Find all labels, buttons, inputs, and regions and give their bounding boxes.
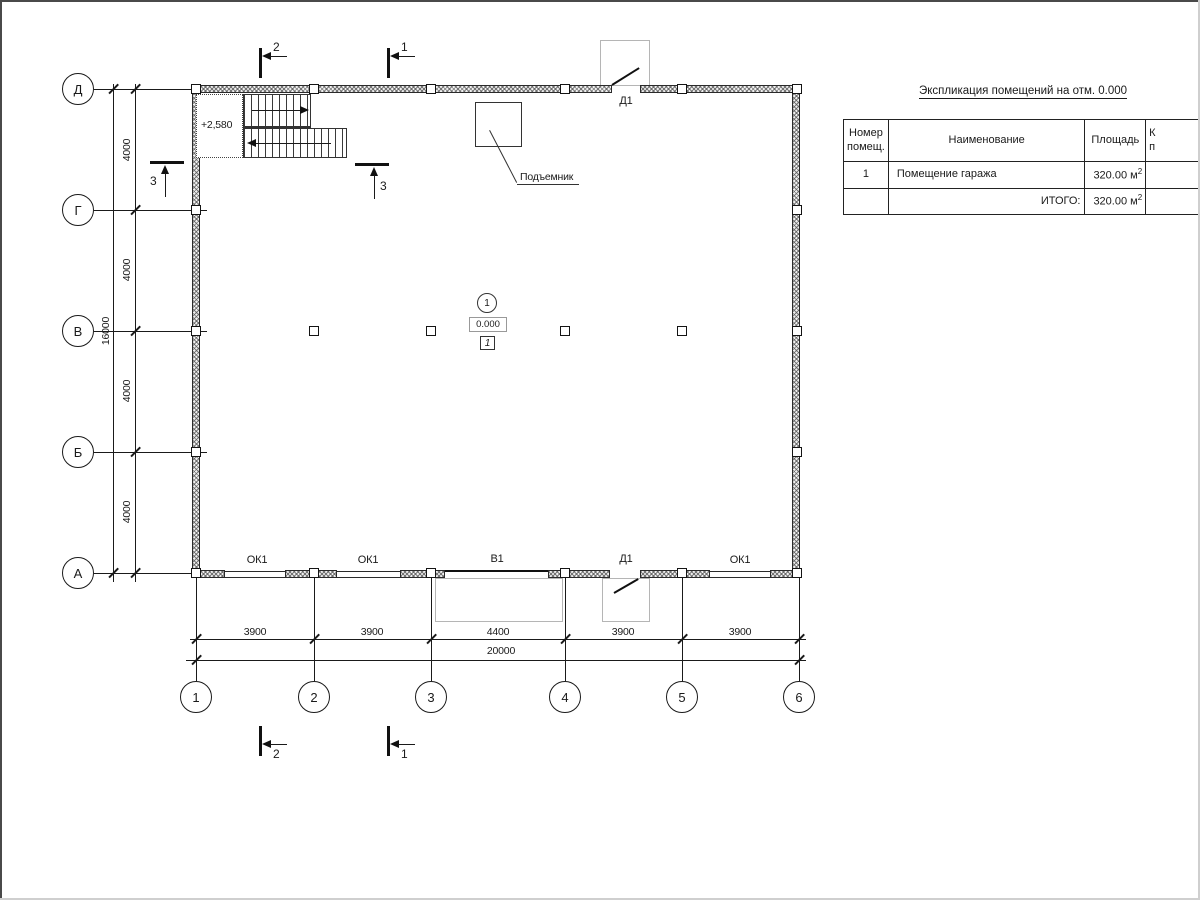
interior-column bbox=[309, 326, 319, 336]
door-label-bottom: Д1 bbox=[611, 553, 641, 565]
wall-bottom-4 bbox=[548, 570, 610, 578]
stair-arrow-up-icon bbox=[300, 106, 309, 114]
column bbox=[677, 84, 687, 94]
spec-cell-category bbox=[1146, 162, 1200, 189]
spec-header-category-line1: К bbox=[1149, 127, 1155, 139]
axis-number: 3 bbox=[427, 690, 434, 705]
column bbox=[792, 447, 802, 457]
spec-total-area: 320.00 м2 bbox=[1085, 189, 1146, 215]
section-cut-line bbox=[150, 161, 184, 164]
column bbox=[309, 84, 319, 94]
column bbox=[426, 84, 436, 94]
section-label: 1 bbox=[401, 40, 407, 54]
wall-bottom-5 bbox=[640, 570, 710, 578]
dim-label: 4000 bbox=[121, 492, 133, 532]
axis-letter: Б bbox=[74, 445, 83, 460]
spec-header-row: Номер помещ. Наименование Площадь К п bbox=[844, 120, 1200, 162]
dim-label: 3900 bbox=[603, 626, 643, 638]
axis-line-col bbox=[799, 578, 800, 681]
section-label: 1 bbox=[401, 747, 407, 761]
section-arrow-line bbox=[374, 175, 375, 199]
spec-total-empty bbox=[844, 189, 889, 215]
column bbox=[560, 84, 570, 94]
column bbox=[191, 326, 201, 336]
axis-number: 1 bbox=[192, 690, 199, 705]
spec-cell-num: 1 bbox=[844, 162, 889, 189]
area-value: 320.00 м bbox=[1093, 196, 1137, 208]
axis-letter: В bbox=[74, 324, 83, 339]
door-label-top: Д1 bbox=[611, 95, 641, 107]
dim-label: 4400 bbox=[478, 626, 518, 638]
axis-circle-col: 2 bbox=[298, 681, 330, 713]
axis-circle-row: А bbox=[62, 557, 94, 589]
gate-apron bbox=[435, 578, 563, 622]
spec-header-category-line2: п bbox=[1149, 141, 1155, 153]
column bbox=[560, 568, 570, 578]
axis-number: 5 bbox=[678, 690, 685, 705]
room-number: 1 bbox=[484, 298, 490, 309]
dim-label: 4000 bbox=[121, 250, 133, 290]
axis-circle-col: 4 bbox=[549, 681, 581, 713]
wall-bottom-3 bbox=[400, 570, 445, 578]
dim-line-left-segments bbox=[135, 84, 136, 582]
interior-column bbox=[677, 326, 687, 336]
frame-left-edge bbox=[0, 0, 2, 900]
axis-number: 4 bbox=[561, 690, 568, 705]
column bbox=[191, 205, 201, 215]
spec-total-row: ИТОГО: 320.00 м2 bbox=[844, 189, 1200, 215]
spec-table-title-text: Экспликация помещений на отм. 0.000 bbox=[919, 85, 1127, 99]
axis-circle-col: 1 bbox=[180, 681, 212, 713]
section-cut-line bbox=[355, 163, 389, 166]
column bbox=[792, 205, 802, 215]
axis-circle-row: Б bbox=[62, 436, 94, 468]
wall-top-b bbox=[640, 85, 800, 93]
window-label-2: ОК1 bbox=[353, 554, 383, 566]
dim-line-bottom-segments bbox=[190, 639, 806, 640]
section-arrow-line bbox=[398, 744, 415, 745]
room-number-circle: 1 bbox=[477, 293, 497, 313]
area-superscript: 2 bbox=[1138, 167, 1142, 176]
window-ok1-2 bbox=[337, 571, 400, 578]
drawing-sheet: +2,580 Подъемник 1 0.000 1 Д1 ОК1 ОК1 В1… bbox=[0, 0, 1200, 900]
axis-line-col bbox=[431, 578, 432, 681]
dim-line-left-total bbox=[113, 84, 114, 582]
axis-line-col bbox=[682, 578, 683, 681]
spec-header-num: Номер помещ. bbox=[844, 120, 889, 162]
column bbox=[309, 568, 319, 578]
spec-total-label: ИТОГО: bbox=[888, 189, 1085, 215]
spec-table: Номер помещ. Наименование Площадь К п 1 … bbox=[843, 119, 1200, 215]
door-swing-top bbox=[600, 40, 650, 86]
column bbox=[792, 84, 802, 94]
dim-label: 4000 bbox=[121, 130, 133, 170]
axis-circle-row: Г bbox=[62, 194, 94, 226]
room-elevation: 0.000 bbox=[476, 319, 500, 330]
hoist-outline bbox=[475, 102, 522, 147]
wall-top-a bbox=[192, 85, 612, 93]
axis-line-col bbox=[314, 578, 315, 681]
dim-line-bottom-total bbox=[186, 660, 806, 661]
spec-cell-area: 320.00 м2 bbox=[1085, 162, 1146, 189]
axis-letter: Г bbox=[74, 203, 81, 218]
axis-line-col bbox=[565, 578, 566, 681]
stair-elevation-label: +2,580 bbox=[201, 119, 232, 131]
axis-circle-col: 3 bbox=[415, 681, 447, 713]
area-superscript: 2 bbox=[1138, 193, 1142, 202]
dim-label-total: 16000 bbox=[100, 306, 112, 356]
section-arrow-line bbox=[270, 56, 287, 57]
column bbox=[191, 568, 201, 578]
hoist-label: Подъемник bbox=[520, 171, 573, 183]
frame-top-edge bbox=[0, 0, 1200, 2]
dim-label: 3900 bbox=[720, 626, 760, 638]
section-arrow-line bbox=[398, 56, 415, 57]
column bbox=[191, 447, 201, 457]
dim-label: 3900 bbox=[352, 626, 392, 638]
section-arrow-line bbox=[165, 173, 166, 197]
column bbox=[426, 568, 436, 578]
axis-circle-col: 5 bbox=[666, 681, 698, 713]
spec-header-category: К п bbox=[1146, 120, 1200, 162]
axis-letter: А bbox=[74, 566, 83, 581]
axis-number: 2 bbox=[310, 690, 317, 705]
axis-number: 6 bbox=[795, 690, 802, 705]
window-ok1-1 bbox=[225, 571, 285, 578]
column bbox=[191, 84, 201, 94]
column bbox=[677, 568, 687, 578]
room-type-box: 1 bbox=[480, 336, 495, 350]
spec-header-area: Площадь bbox=[1085, 120, 1146, 162]
stair-arrow-down-line bbox=[255, 143, 331, 144]
dim-label-total: 20000 bbox=[471, 645, 531, 657]
section-label: 2 bbox=[273, 40, 279, 54]
hoist-leader-underline bbox=[517, 184, 579, 185]
dim-label: 4000 bbox=[121, 371, 133, 411]
window-label-3: ОК1 bbox=[725, 554, 755, 566]
column bbox=[792, 568, 802, 578]
axis-circle-row: В bbox=[62, 315, 94, 347]
room-elevation-box: 0.000 bbox=[469, 317, 507, 332]
axis-letter: Д bbox=[74, 82, 83, 97]
axis-circle-col: 6 bbox=[783, 681, 815, 713]
spec-header-name: Наименование bbox=[888, 120, 1085, 162]
spec-data-row: 1 Помещение гаража 320.00 м2 bbox=[844, 162, 1200, 189]
section-arrow-line bbox=[270, 744, 287, 745]
window-ok1-3 bbox=[710, 571, 770, 578]
section-label: 2 bbox=[273, 747, 279, 761]
gate-label: В1 bbox=[482, 553, 512, 565]
dim-label: 3900 bbox=[235, 626, 275, 638]
interior-column bbox=[426, 326, 436, 336]
axis-line-col bbox=[196, 578, 197, 681]
interior-column bbox=[560, 326, 570, 336]
column bbox=[792, 326, 802, 336]
area-value: 320.00 м bbox=[1093, 169, 1137, 181]
gate-line bbox=[445, 570, 548, 572]
stair-arrow-up-line bbox=[252, 110, 302, 111]
axis-circle-row: Д bbox=[62, 73, 94, 105]
section-label: 3 bbox=[150, 174, 156, 188]
stair-arrow-down-icon bbox=[247, 139, 256, 147]
section-label: 3 bbox=[380, 179, 386, 193]
spec-table-title: Экспликация помещений на отм. 0.000 bbox=[843, 85, 1200, 97]
room-type-tag: 1 bbox=[485, 338, 491, 349]
window-label-1: ОК1 bbox=[242, 554, 272, 566]
spec-total-category bbox=[1146, 189, 1200, 215]
spec-cell-name: Помещение гаража bbox=[888, 162, 1085, 189]
